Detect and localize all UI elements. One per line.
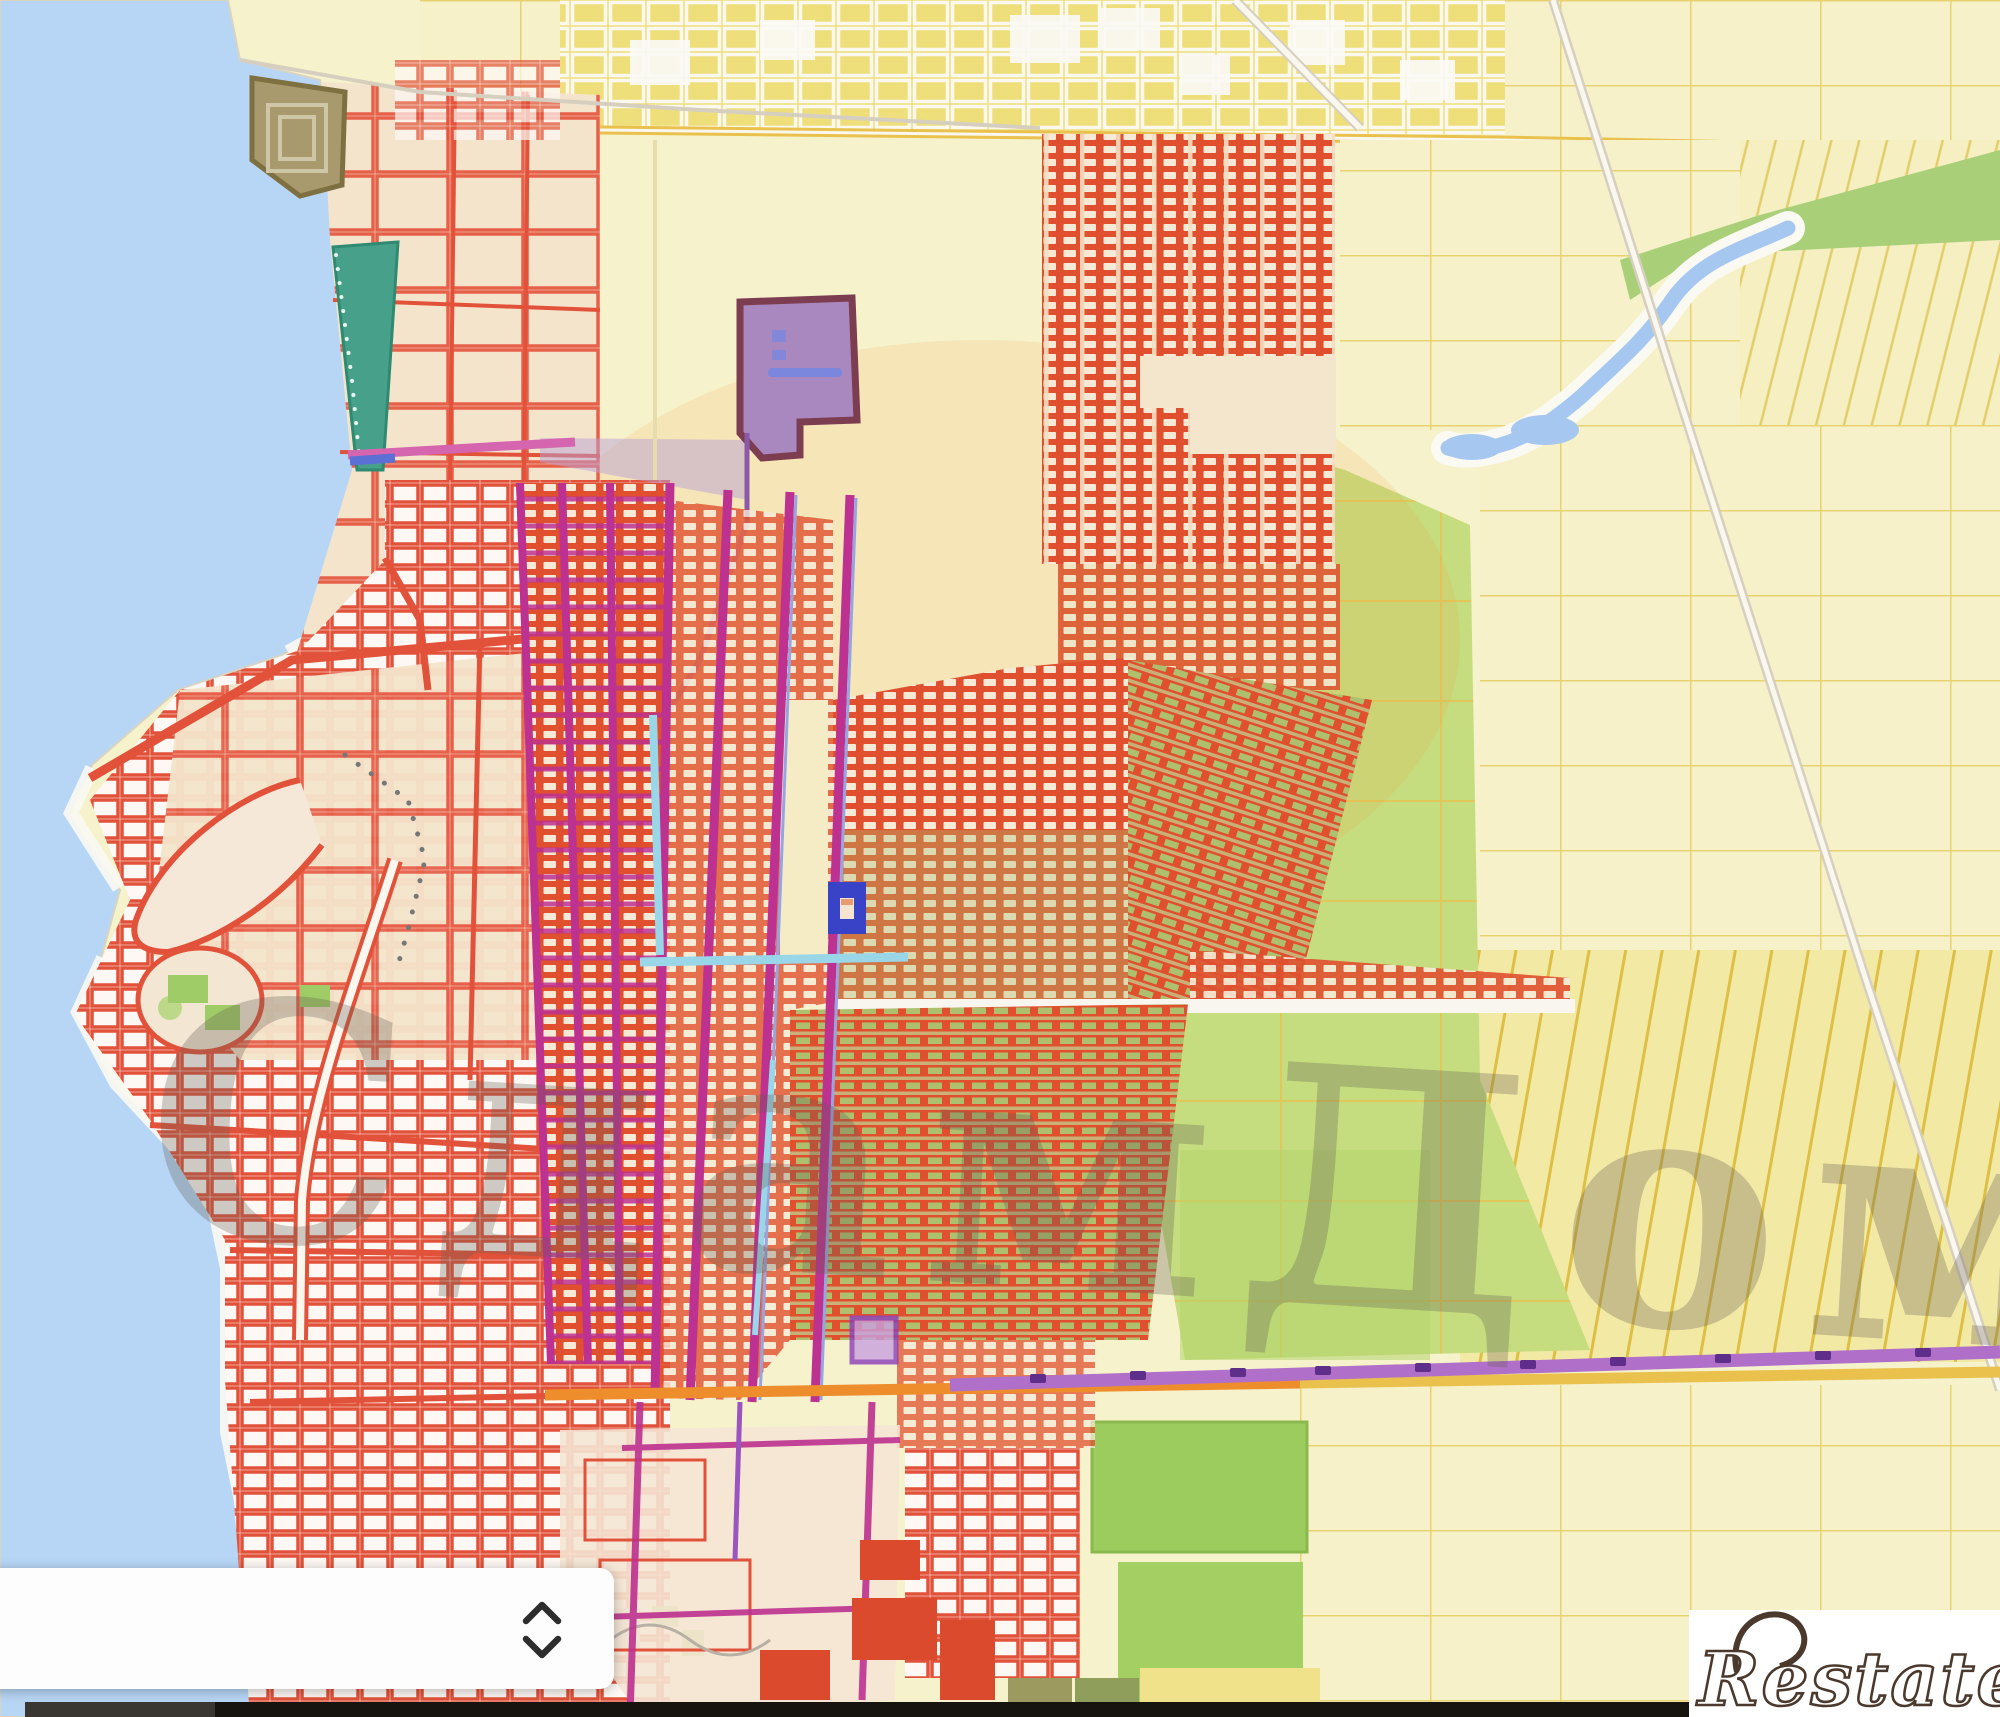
map-app-window: СдамДом Restate [0, 0, 2000, 1717]
logo-text: Restate [1696, 1637, 2000, 1717]
green-parcel [1092, 1422, 1307, 1552]
pond [1511, 415, 1579, 445]
map-canvas[interactable]: СдамДом Restate [0, 0, 2000, 1717]
bottom-bar [25, 1702, 1870, 1717]
selected-parcel-marker[interactable] [828, 882, 866, 934]
restate-logo: Restate [1689, 1610, 2000, 1717]
north-yellow-parcels [420, 0, 2000, 150]
pond [1442, 434, 1502, 460]
bottom-panel[interactable] [0, 1568, 614, 1689]
